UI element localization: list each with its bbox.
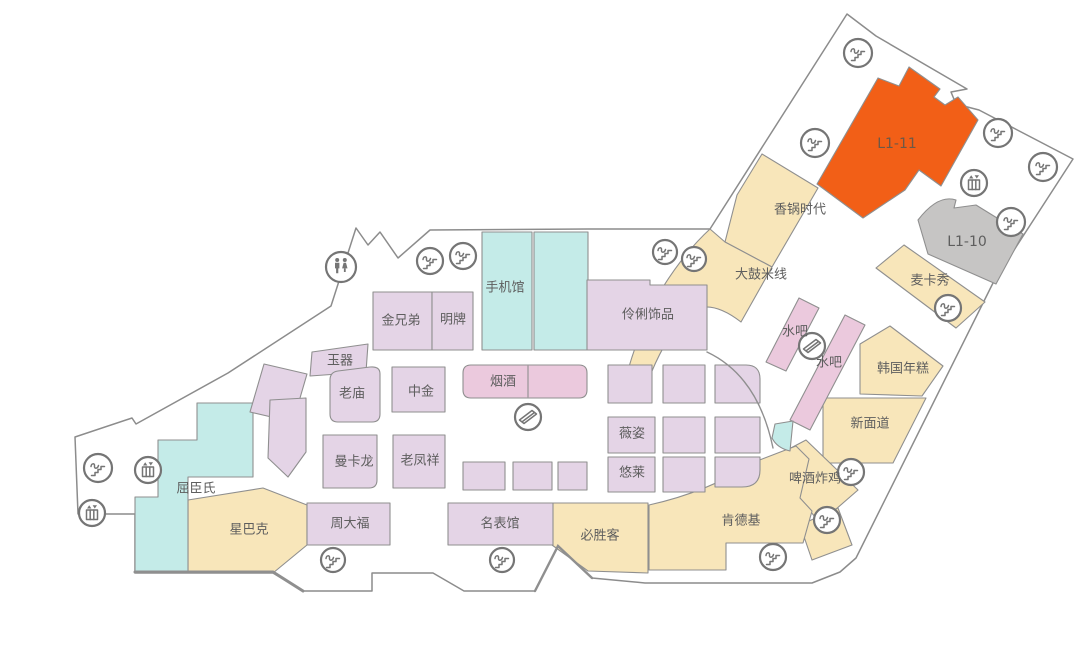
- unit-label-laofengxiang: 老凤祥: [400, 454, 439, 469]
- unit-grid-4[interactable]: [663, 417, 705, 453]
- escalator-icon: [653, 240, 677, 264]
- unit-grid-5[interactable]: [715, 417, 760, 453]
- escalator-icon: [997, 208, 1025, 236]
- unit-label-xinmiandao: 新面道: [850, 416, 889, 432]
- escalator-icon: [935, 295, 961, 321]
- unit-shoujiguan-2[interactable]: [534, 232, 588, 350]
- escalator-icon: [417, 248, 443, 274]
- unit-grid-3[interactable]: [715, 365, 760, 403]
- unit-label-xiangguoshidai: 香锅时代: [774, 202, 826, 218]
- unit-label-hanguoniangao: 韩国年糕: [877, 362, 929, 377]
- unit-label-mingbiaoguan: 名表馆: [480, 516, 519, 532]
- unit-label-l1-10: L1-10: [947, 234, 987, 250]
- escalator-icon: [801, 129, 829, 157]
- escalator-icon: [814, 507, 840, 533]
- unit-label-pijiuzhaji: 啤酒炸鸡: [789, 471, 841, 487]
- unit-small-2[interactable]: [513, 462, 552, 490]
- unit-label-bishengke: 必胜客: [580, 528, 619, 544]
- unit-grid-2[interactable]: [663, 365, 705, 403]
- elevator-icon: [79, 500, 105, 526]
- unit-yanjiu[interactable]: [463, 365, 587, 398]
- escalator-icon: [844, 39, 872, 67]
- unit-label-xingbake: 星巴克: [229, 523, 268, 538]
- restroom-icon: [326, 252, 356, 282]
- unit-label-kendeji: 肯德基: [721, 514, 760, 529]
- escalator-icon: [984, 119, 1012, 147]
- escalator-icon: [450, 243, 476, 269]
- unit-label-shuiba-1: 水吧: [782, 325, 808, 340]
- unit-label-linglishipin: 伶俐饰品: [622, 308, 674, 323]
- mall-floorplan-page: 香锅时代大鼓米线L1-11L1-10麦卡秀韩国年糕新面道水吧水吧啤酒炸鸡肯德基必…: [0, 0, 1089, 652]
- escalator-icon: [321, 548, 345, 572]
- elevator-icon: [135, 457, 161, 483]
- unit-label-l1-11: L1-11: [877, 136, 917, 152]
- map-line: [135, 572, 303, 591]
- unit-label-mingpai: 明牌: [440, 312, 466, 328]
- escalator-icon: [682, 247, 706, 271]
- escalator-icon: [838, 459, 864, 485]
- unit-label-youlai: 悠莱: [619, 466, 645, 481]
- unit-label-zhongjin: 中金: [408, 384, 434, 400]
- unit-label-dagumixian: 大鼓米线: [735, 268, 787, 283]
- unit-label-weizi: 薇姿: [619, 426, 645, 442]
- unit-label-quchenshi: 屈臣氏: [176, 482, 215, 497]
- unit-label-jinxiongdi: 金兄弟: [381, 313, 420, 329]
- unit-label-mankalong: 曼卡龙: [334, 455, 373, 470]
- unit-label-shuiba-2: 水吧: [816, 356, 842, 371]
- escalator-icon: [1029, 153, 1057, 181]
- mall-floorplan-svg: 香锅时代大鼓米线L1-11L1-10麦卡秀韩国年糕新面道水吧水吧啤酒炸鸡肯德基必…: [0, 0, 1089, 652]
- unit-label-shoujiguan: 手机馆: [485, 281, 524, 296]
- escalator-icon: [760, 544, 786, 570]
- unit-grid-6[interactable]: [663, 457, 705, 492]
- walkway-icon: [515, 404, 541, 430]
- escalator-icon: [490, 548, 514, 572]
- unit-grid-1[interactable]: [608, 365, 652, 403]
- unit-label-yanjiu: 烟酒: [490, 375, 516, 390]
- unit-label-laomiao: 老庙: [339, 387, 365, 402]
- escalator-icon: [84, 454, 112, 482]
- unit-label-maikaxiu: 麦卡秀: [910, 274, 949, 289]
- unit-label-zhoudafu: 周大福: [330, 517, 369, 532]
- unit-small-3[interactable]: [558, 462, 587, 490]
- unit-small-1[interactable]: [463, 462, 505, 490]
- unit-grid-7[interactable]: [715, 457, 760, 487]
- unit-label-yuqi: 玉器: [327, 354, 353, 369]
- elevator-icon: [961, 170, 987, 196]
